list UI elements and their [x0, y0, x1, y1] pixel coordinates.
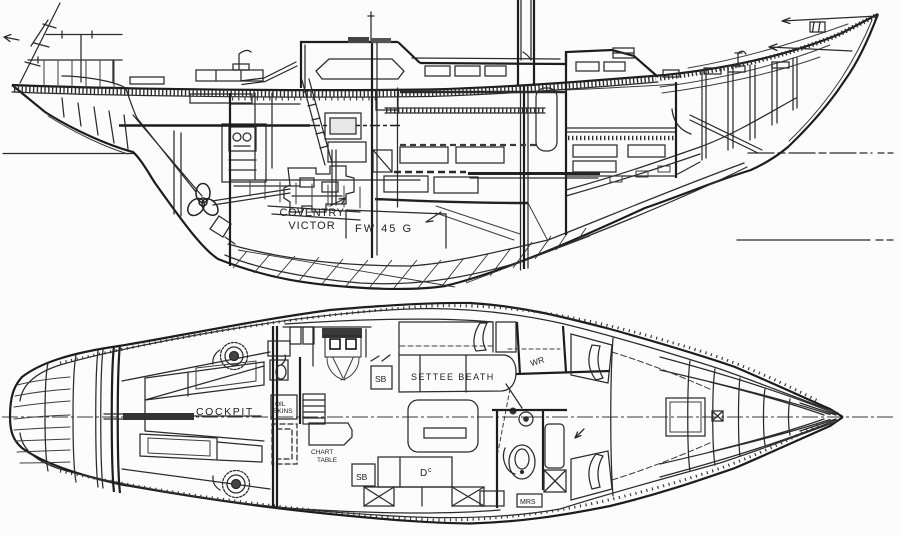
svg-text:VICTOR: VICTOR: [288, 220, 335, 232]
svg-text:SETTEE BEATH: SETTEE BEATH: [411, 372, 495, 382]
svg-text:FW 45 G: FW 45 G: [355, 223, 413, 235]
svg-text:MRS: MRS: [520, 499, 536, 506]
svg-text:SB: SB: [375, 374, 387, 384]
svg-text:CHART: CHART: [311, 449, 333, 456]
svg-text:SB: SB: [356, 472, 368, 482]
svg-text:TABLE: TABLE: [317, 457, 338, 464]
svg-text:OIL: OIL: [275, 401, 286, 408]
svg-text:c: c: [428, 467, 432, 474]
svg-text:D: D: [420, 468, 427, 479]
svg-text:COVENTRY: COVENTRY: [280, 207, 345, 219]
svg-text:SKINS: SKINS: [273, 408, 293, 415]
